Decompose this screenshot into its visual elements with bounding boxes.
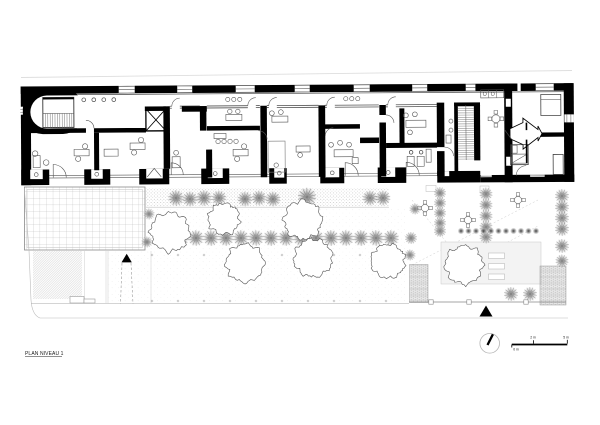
svg-text:2 m: 2 m [530, 336, 536, 340]
svg-text:0 m: 0 m [513, 348, 519, 352]
svg-text:5 m: 5 m [563, 336, 569, 340]
svg-text:PLAN NIVEAU 1: PLAN NIVEAU 1 [25, 351, 64, 357]
